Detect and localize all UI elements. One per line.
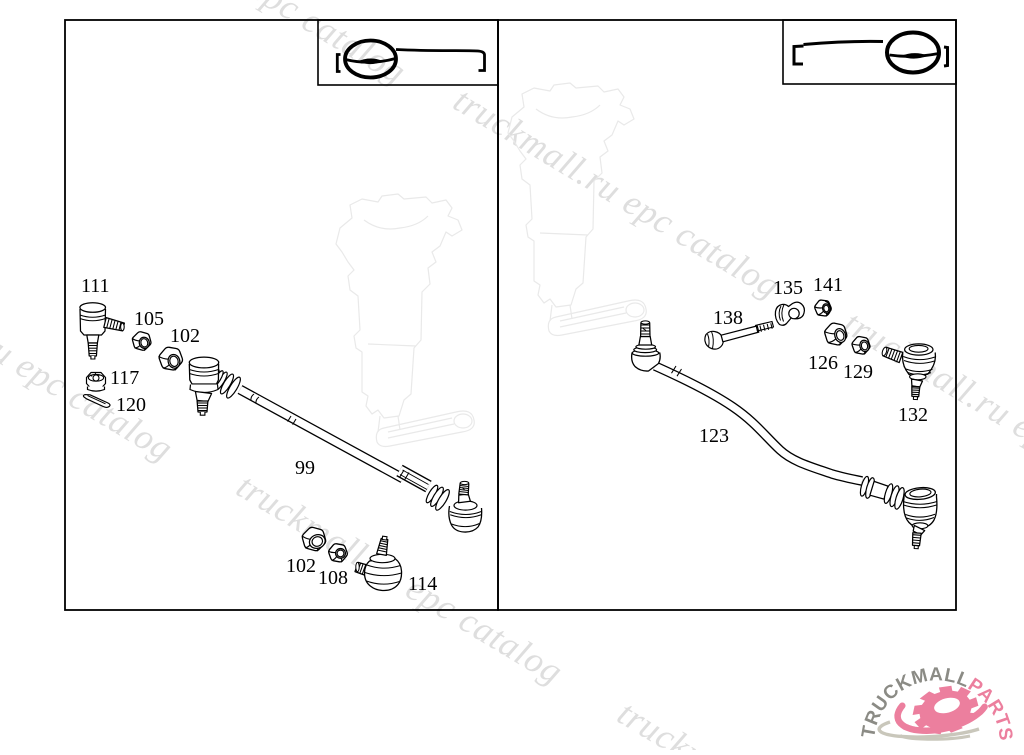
svg-text:117: 117 (110, 367, 139, 389)
svg-text:102: 102 (286, 555, 316, 577)
svg-text:105: 105 (134, 308, 164, 330)
svg-text:114: 114 (408, 573, 437, 595)
svg-text:135: 135 (773, 277, 803, 299)
svg-text:108: 108 (318, 567, 348, 589)
svg-text:126: 126 (808, 352, 838, 374)
svg-text:102: 102 (170, 325, 200, 347)
svg-text:132: 132 (898, 404, 928, 426)
svg-text:129: 129 (843, 361, 873, 383)
svg-text:141: 141 (813, 274, 843, 296)
svg-text:123: 123 (699, 425, 729, 447)
svg-text:99: 99 (295, 457, 315, 479)
svg-text:138: 138 (713, 307, 743, 329)
svg-text:111: 111 (81, 275, 110, 297)
svg-text:120: 120 (116, 394, 146, 416)
